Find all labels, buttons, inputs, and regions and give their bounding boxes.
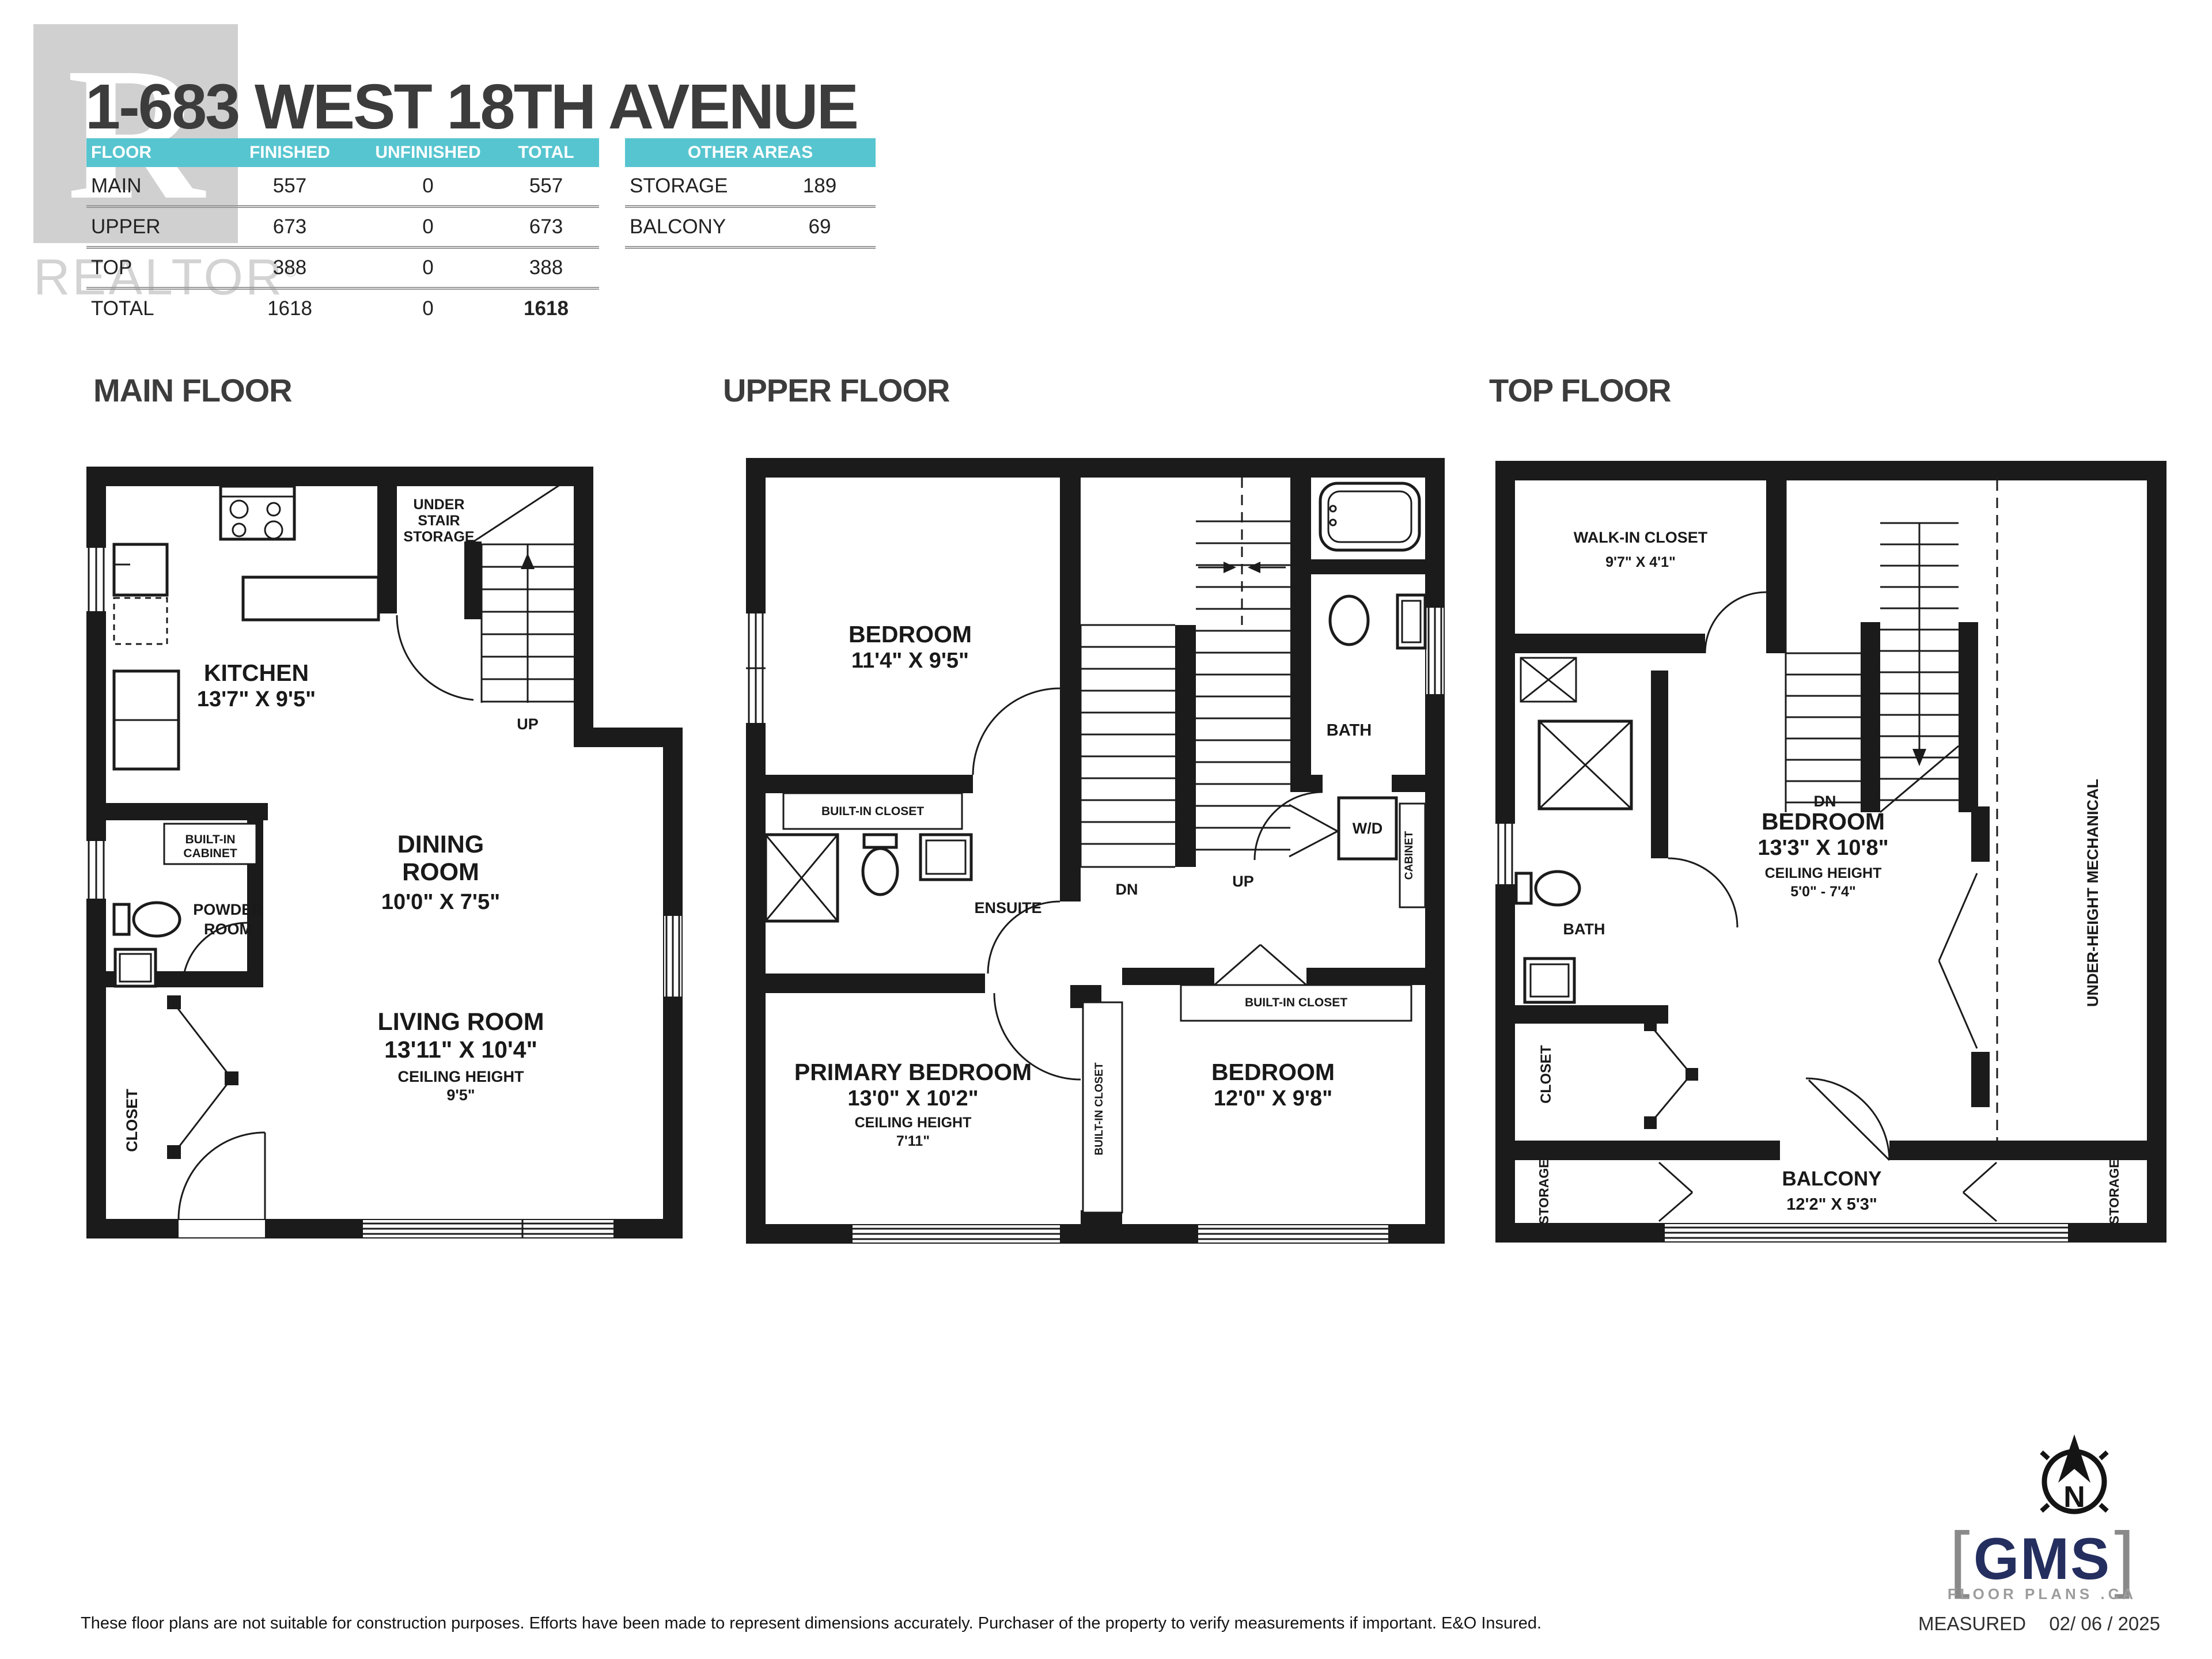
- upper-floor-plan: DN UP: [737, 452, 1452, 1253]
- balcony-dims: 12'2" X 5'3": [1786, 1195, 1877, 1214]
- cell: 673: [218, 215, 362, 238]
- floor-plan-sheet: R REALTOR® 1-683 WEST 18TH AVENUE FLOOR …: [0, 0, 2212, 1659]
- built-in-closet-label-1: BUILT-IN CLOSET: [821, 805, 924, 818]
- measured-date: 02/ 06 / 2025: [2049, 1613, 2160, 1635]
- cell: BALCONY: [625, 215, 774, 238]
- kitchen-dims: 13'7" X 9'5": [197, 687, 316, 711]
- table-row-total: TOTAL 1618 0 1618: [86, 290, 599, 328]
- walk-in-dims: 9'7" X 4'1": [1605, 554, 1676, 570]
- north-arrow-icon: [2058, 1434, 2090, 1483]
- upper-floor-title: UPPER FLOOR: [723, 372, 1460, 409]
- ensuite-sink: [921, 835, 971, 880]
- bedroom2-double-doors: [1214, 945, 1306, 985]
- arrow-left-icon: [1248, 562, 1260, 573]
- cell: STORAGE: [625, 175, 774, 198]
- table-row-storage: STORAGE 189: [625, 167, 876, 208]
- storage-right-doors: [1963, 1162, 1997, 1221]
- dining-door-arc: [397, 615, 474, 700]
- stove: [221, 486, 294, 539]
- powder-label-1: POWDER: [193, 901, 263, 918]
- closet-double-doors: [1644, 1018, 1698, 1129]
- cell: 0: [362, 175, 494, 198]
- bedroom-accordion-doors: [1939, 873, 1977, 1048]
- storage-right-label: STORAGE: [2107, 1159, 2122, 1224]
- ensuite-label: ENSUITE: [974, 899, 1041, 916]
- primary-label: PRIMARY BEDROOM: [794, 1059, 1032, 1085]
- cell: TOP: [86, 256, 218, 279]
- bedroom1-dims: 11'4" X 9'5": [851, 649, 969, 673]
- measured-line: MEASURED 02/ 06 / 2025: [1918, 1613, 2160, 1635]
- bath-label: BATH: [1563, 921, 1605, 938]
- bedroom-ceiling-label: CEILING HEIGHT: [1765, 865, 1882, 881]
- cell: 557: [494, 175, 598, 198]
- living-ceiling-value: 9'5": [446, 1086, 475, 1104]
- cell: 1618: [218, 297, 362, 320]
- ensuite-toilet: [863, 835, 897, 895]
- primary-ceiling-label: CEILING HEIGHT: [855, 1115, 972, 1131]
- col-total: TOTAL: [494, 143, 598, 162]
- page-title: 1-683 WEST 18TH AVENUE: [85, 70, 857, 143]
- ensuite-shower: [766, 835, 838, 921]
- powder-sink: [115, 949, 156, 986]
- built-in-cabinet-label-1: BUILT-IN: [185, 833, 235, 846]
- cell: 69: [774, 215, 866, 238]
- primary-dims: 13'0" X 10'2": [847, 1086, 978, 1111]
- kitchen-label: KITCHEN: [204, 660, 309, 686]
- wd-bifold-doors: [1289, 805, 1338, 857]
- cell-total: 1618: [494, 297, 598, 320]
- up-arrow-icon: [521, 553, 535, 569]
- living-label: LIVING ROOM: [377, 1008, 544, 1036]
- living-dims: 13'11" X 10'4": [384, 1036, 537, 1063]
- cell: 673: [494, 215, 598, 238]
- cell: 388: [494, 256, 598, 279]
- primary-ceiling-value: 7'11": [896, 1133, 930, 1149]
- chase-box: [1521, 658, 1576, 702]
- logo-name: GMS: [1970, 1529, 2114, 1588]
- mechanical-label: UNDER-HEIGHT MECHANICAL: [2084, 779, 2101, 1007]
- dishwasher: [114, 598, 167, 644]
- other-areas-table: OTHER AREAS STORAGE 189 BALCONY 69: [625, 138, 876, 249]
- balcony-door: [1806, 1078, 1889, 1160]
- closet-label: CLOSET: [1538, 1045, 1554, 1103]
- compass-icon: N: [2031, 1431, 2118, 1529]
- top-floor-plan: DN: [1486, 455, 2169, 1247]
- top-floor-section: TOP FLOOR: [1489, 372, 2212, 1270]
- living-ceiling-label: CEILING HEIGHT: [397, 1068, 524, 1085]
- compass-n-label: N: [2063, 1480, 2085, 1514]
- col-unfinished: UNFINISHED: [362, 143, 494, 162]
- arrow-right-icon: [1224, 562, 1236, 573]
- table-row-balcony: BALCONY 69: [625, 208, 876, 249]
- disclaimer-text: These floor plans are not suitable for c…: [81, 1614, 1541, 1633]
- table-row-top: TOP 388 0 388: [86, 249, 599, 290]
- walk-in-label: WALK-IN CLOSET: [1574, 529, 1708, 546]
- cell: UPPER: [86, 215, 218, 238]
- cell: 557: [218, 175, 362, 198]
- cabinet-label: CABINET: [1403, 831, 1415, 880]
- top-labels: WALK-IN CLOSET 9'7" X 4'1" BATH BEDROOM …: [1536, 529, 2122, 1225]
- area-table-header: FLOOR FINISHED UNFINISHED TOTAL: [86, 138, 599, 167]
- bedroom-label: BEDROOM: [1762, 808, 1885, 835]
- measured-label: MEASURED: [1918, 1613, 2026, 1635]
- main-stairs: UP: [467, 476, 574, 733]
- gms-logo: [ GMS ] FLOOR PLANS .CA: [1918, 1522, 2166, 1601]
- closet-label: CLOSET: [123, 1089, 141, 1152]
- cell: TOTAL: [86, 297, 218, 320]
- bath-sink: [1525, 959, 1574, 1002]
- balcony-label: BALCONY: [1782, 1168, 1881, 1190]
- upper-floor-section: UPPER FLOOR: [723, 372, 1460, 1270]
- dining-label-1: DINING: [397, 831, 484, 858]
- storage-left-label: STORAGE: [1536, 1159, 1551, 1224]
- built-in-closet-label-2: BUILT-IN CLOSET: [1093, 1062, 1105, 1156]
- under-stair-slope: [467, 476, 574, 546]
- kitchen-sink-counter: [114, 544, 167, 595]
- bath-door-arc: [1668, 858, 1737, 927]
- wd-label: W/D: [1353, 820, 1382, 837]
- top-floor-title: TOP FLOOR: [1489, 372, 2212, 409]
- bedroom1-label: BEDROOM: [849, 621, 972, 647]
- shower: [1539, 721, 1631, 809]
- built-in-closet-label-3: BUILT-IN CLOSET: [1245, 996, 1347, 1009]
- cell: 189: [774, 175, 866, 198]
- dn-label: DN: [1116, 881, 1138, 898]
- table-row-upper: UPPER 673 0 673: [86, 208, 599, 249]
- under-stair-label-1: UNDER: [414, 497, 465, 513]
- floor-area-table: FLOOR FINISHED UNFINISHED TOTAL MAIN 557…: [86, 138, 599, 328]
- bedroom2-dims: 12'0" X 9'8": [1214, 1086, 1332, 1111]
- bedroom-ceiling-value: 5'0" - 7'4": [1790, 884, 1855, 900]
- up-label: UP: [517, 715, 539, 733]
- bedroom2-label: BEDROOM: [1211, 1059, 1335, 1085]
- cell: 0: [362, 297, 494, 320]
- powder-toilet: [114, 903, 180, 936]
- closet-double-doors: [167, 995, 238, 1159]
- main-floor-plan: UP: [86, 449, 683, 1256]
- other-areas-header: OTHER AREAS: [625, 138, 876, 167]
- cell: 0: [362, 215, 494, 238]
- logo-bracket-left: [: [1949, 1522, 1970, 1596]
- under-stair-label-3: STORAGE: [403, 529, 474, 545]
- island-counter: [243, 577, 378, 620]
- col-finished: FINISHED: [218, 143, 362, 162]
- bath-toilet: [1516, 872, 1580, 905]
- walk-in-door-arc: [1705, 592, 1766, 653]
- bedroom-dims: 13'3" X 10'8": [1758, 836, 1888, 860]
- bath-sink: [1397, 595, 1425, 648]
- storage-left-doors: [1659, 1162, 1692, 1221]
- up-label: UP: [1232, 873, 1254, 890]
- top-fixtures: [1516, 658, 1631, 1002]
- bath-label: BATH: [1327, 721, 1372, 740]
- dining-dims: 10'0" X 7'5": [381, 890, 500, 914]
- table-row-main: MAIN 557 0 557: [86, 167, 599, 208]
- main-floor-section: MAIN FLOOR: [86, 372, 697, 1270]
- cell: 388: [218, 256, 362, 279]
- col-floor: FLOOR: [86, 143, 218, 162]
- logo-bracket-right: ]: [2114, 1522, 2135, 1596]
- powder-label-2: ROOM: [204, 921, 252, 938]
- entry-door-arc: [179, 1132, 265, 1219]
- cell: MAIN: [86, 175, 218, 198]
- bedroom1-door-arc: [973, 688, 1060, 775]
- main-floor-title: MAIN FLOOR: [93, 372, 697, 409]
- under-stair-label-2: STAIR: [418, 513, 460, 529]
- top-doors: [1644, 592, 1997, 1221]
- logo-tagline: FLOOR PLANS .CA: [1918, 1586, 2166, 1601]
- cell: 0: [362, 256, 494, 279]
- built-in-cabinet-label-2: CABINET: [183, 847, 237, 860]
- bathtub: [1320, 483, 1419, 550]
- dn-label: DN: [1814, 793, 1836, 810]
- other-areas-title: OTHER AREAS: [688, 143, 813, 162]
- bath-toilet: [1330, 596, 1368, 645]
- dining-label-2: ROOM: [402, 858, 479, 886]
